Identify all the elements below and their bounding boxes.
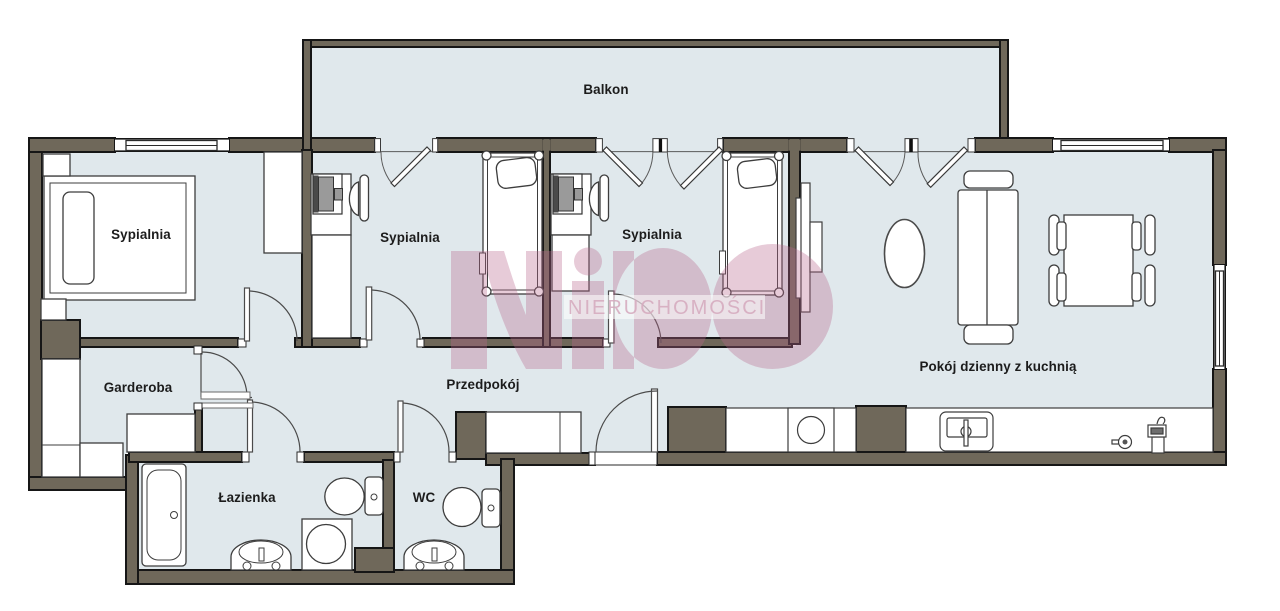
svg-text:WC: WC — [413, 490, 436, 505]
svg-text:Przedpokój: Przedpokój — [446, 377, 519, 392]
svg-text:Sypialnia: Sypialnia — [380, 230, 440, 245]
svg-text:Sypialnia: Sypialnia — [111, 227, 171, 242]
svg-text:Łazienka: Łazienka — [218, 490, 276, 505]
svg-text:Garderoba: Garderoba — [104, 380, 173, 395]
svg-text:Pokój dzienny z kuchnią: Pokój dzienny z kuchnią — [919, 359, 1077, 374]
svg-text:NIERUCHOMOŚCI: NIERUCHOMOŚCI — [568, 295, 766, 319]
svg-text:Balkon: Balkon — [583, 82, 628, 97]
svg-text:Sypialnia: Sypialnia — [622, 227, 682, 242]
